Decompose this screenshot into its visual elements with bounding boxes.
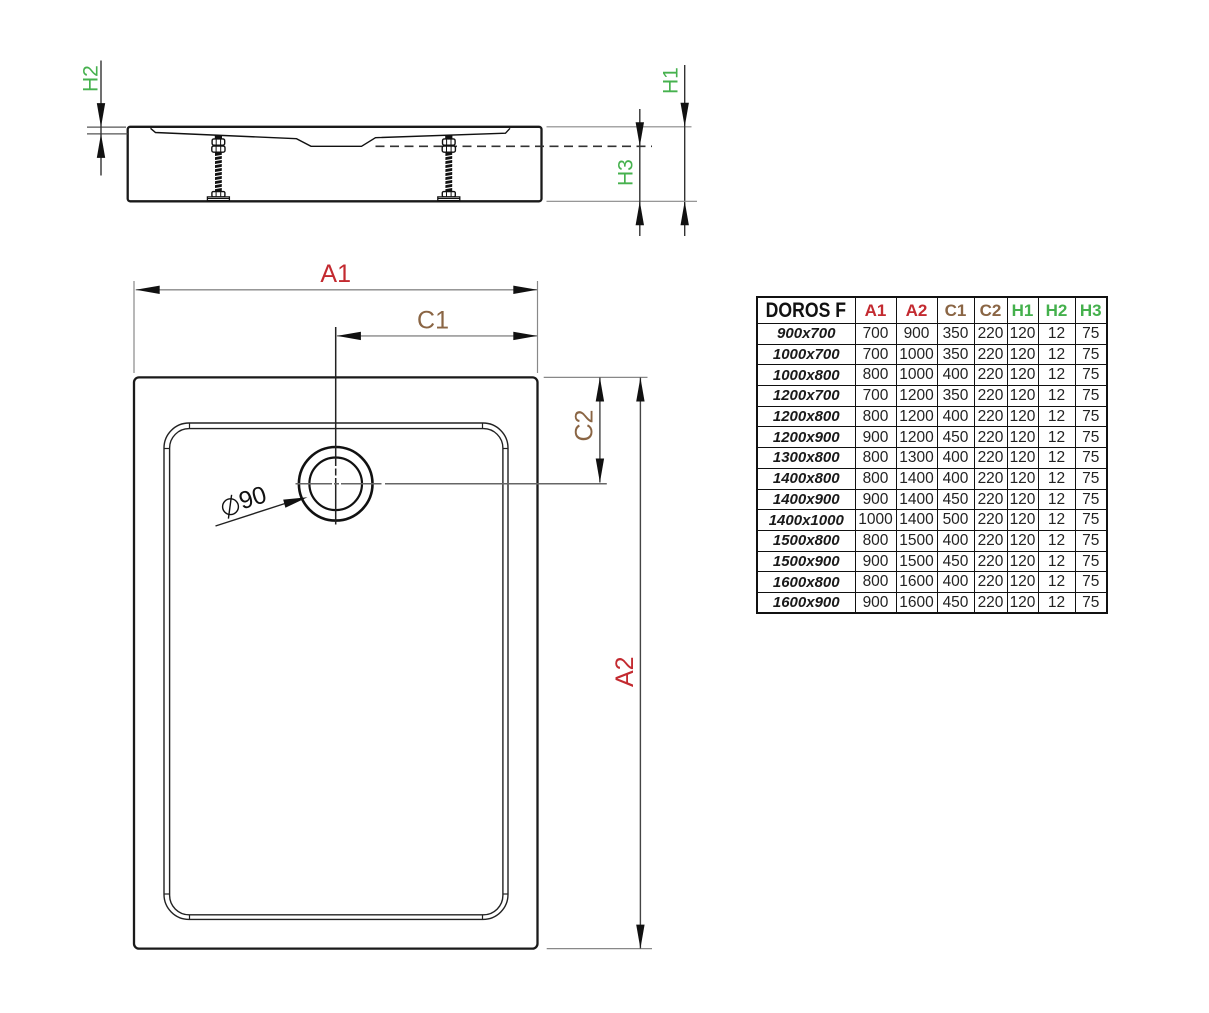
svg-text:H3: H3	[615, 159, 638, 186]
svg-text:A1: A1	[320, 260, 351, 288]
svg-text:H2: H2	[80, 65, 103, 92]
svg-text:H1: H1	[660, 67, 683, 94]
svg-text:C1: C1	[417, 307, 449, 335]
svg-text:A2: A2	[611, 656, 639, 687]
svg-text:C2: C2	[571, 410, 599, 442]
